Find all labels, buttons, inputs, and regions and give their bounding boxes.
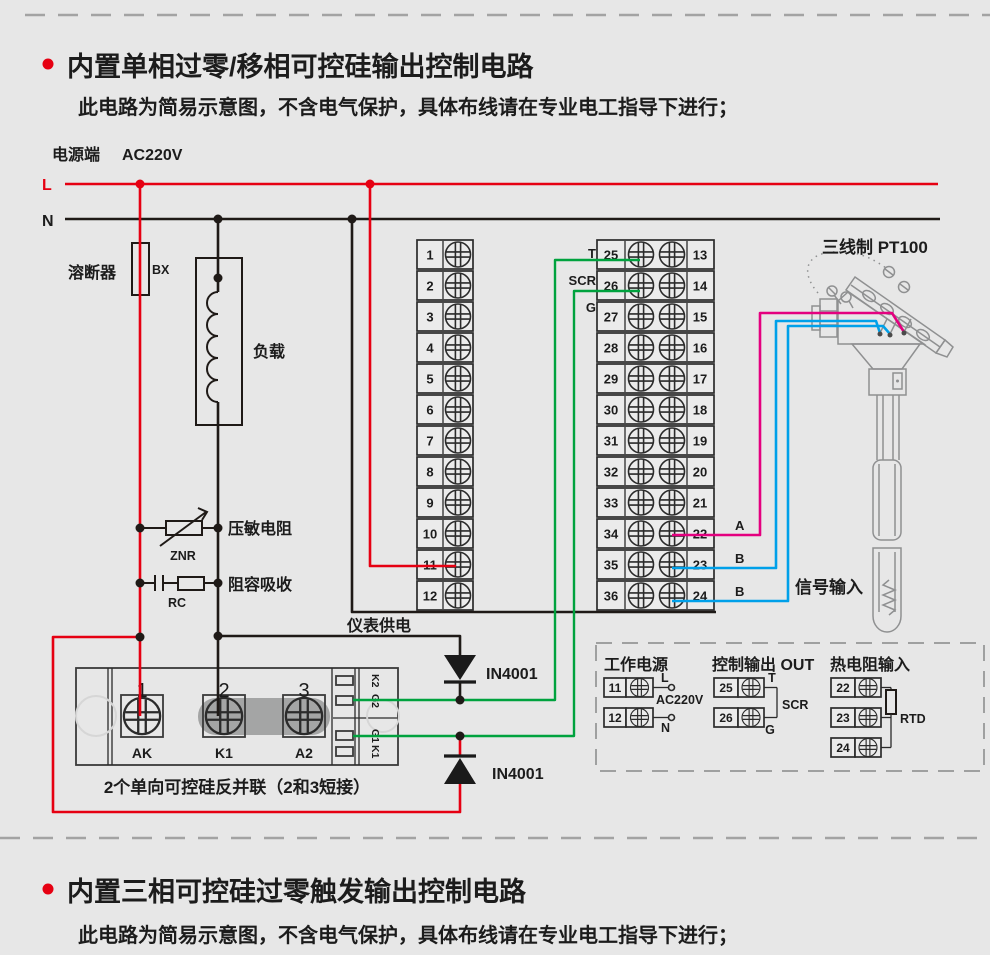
terminal-number: 20	[693, 465, 707, 480]
legend-terminal: 26	[719, 711, 733, 725]
load-label: 负载	[253, 342, 285, 361]
terminal-row: 6	[417, 395, 473, 424]
legend: 工作电源 11 12 L AC220V N 控制输出 OUT 25 26 T S…	[596, 643, 984, 771]
terminal-row: 2816	[597, 333, 714, 362]
terminal-number: 10	[423, 527, 437, 542]
sensor-type-label: 三线制 PT100	[822, 237, 928, 257]
out-t-label: T	[588, 246, 596, 261]
module-terminal-1: 1	[136, 680, 147, 702]
fuse-code-label: BX	[152, 263, 170, 277]
out-scr-label: SCR	[569, 273, 597, 288]
rc-snubber-symbol	[140, 575, 218, 591]
module-caption: 2个单向可控硅反并联（2和3短接）	[104, 777, 370, 797]
terminal-row: 3119	[597, 426, 714, 455]
terminal-number: 31	[604, 434, 618, 449]
legend-terminal: 12	[608, 711, 622, 725]
legend-n-label: N	[661, 721, 670, 735]
terminal-row: 10	[417, 519, 473, 548]
module-label-k1: K1	[215, 745, 233, 761]
terminal-row: 3321	[597, 488, 714, 517]
diode-2	[444, 756, 476, 784]
varistor-code-label: ZNR	[170, 549, 196, 563]
terminal-number: 29	[604, 372, 618, 387]
terminal-number: 14	[693, 279, 708, 294]
terminal-number: 33	[604, 496, 618, 511]
legend-terminal: 23	[836, 711, 850, 725]
terminal-row: 1	[417, 240, 473, 269]
signal-input-label: 信号输入	[795, 577, 863, 597]
terminal-row: 3523	[597, 550, 714, 579]
legend-output-title: 控制输出 OUT	[712, 655, 814, 674]
terminal-row: 8	[417, 457, 473, 486]
terminal-row: 2614	[597, 271, 714, 300]
wire-b2-label: B	[735, 584, 744, 599]
terminal-row: 4	[417, 333, 473, 362]
legend-power-title: 工作电源	[604, 655, 668, 674]
terminal-row: 2	[417, 271, 473, 300]
terminal-row: 2917	[597, 364, 714, 393]
terminal-number: 19	[693, 434, 707, 449]
module-terminal-3: 3	[298, 680, 309, 702]
section2-heading: 内置三相可控硅过零触发输出控制电路 此电路为简易示意图，不含电气保护，具体布线请…	[43, 876, 739, 947]
terminal-number: 8	[426, 465, 433, 480]
module-tab-k1: K1	[369, 745, 381, 759]
line-l-label: L	[42, 177, 52, 194]
fuse-label: 溶断器	[68, 263, 117, 282]
bullet-icon	[43, 59, 54, 70]
terminal-number: 18	[693, 403, 707, 418]
legend-l-label: L	[661, 671, 669, 685]
legend-scr-label: SCR	[782, 698, 808, 712]
section1-subtitle: 此电路为简易示意图，不含电气保护，具体布线请在专业电工指导下进行；	[78, 95, 738, 119]
terminal-number: 16	[693, 341, 707, 356]
wire-b1-label: B	[735, 551, 744, 566]
module-screw-1	[124, 698, 160, 734]
scr-module: 1 2 3 AK K1 A2 K2 G2 G1 K1	[76, 668, 399, 765]
terminal-number: 32	[604, 465, 618, 480]
wiring-diagram: 内置单相过零/移相可控硅输出控制电路 此电路为简易示意图，不含电气保护，具体布线…	[0, 0, 990, 955]
terminal-number: 28	[604, 341, 618, 356]
module-label-a2: A2	[295, 745, 313, 761]
legend-rtd-title: 热电阻输入	[830, 655, 910, 674]
terminal-row: 3422	[597, 519, 714, 548]
module-terminal-2: 2	[218, 680, 229, 702]
wires	[53, 184, 940, 812]
rc-code-label: RC	[168, 596, 186, 610]
module-tab-k2: K2	[369, 674, 381, 688]
pt100-sensor-illustration	[808, 252, 953, 632]
terminal-row: 12	[417, 581, 473, 610]
power-terminal-label: 电源端	[52, 145, 100, 164]
legend-terminal: 11	[609, 681, 622, 695]
line-n-label: N	[42, 213, 54, 230]
terminal-row: 3018	[597, 395, 714, 424]
terminal-row: 3220	[597, 457, 714, 486]
terminal-number: 36	[604, 589, 618, 604]
meter-supply-label: 仪表供电	[346, 616, 411, 635]
terminal-row: 7	[417, 426, 473, 455]
rc-label: 阻容吸收	[228, 575, 292, 594]
out-g-label: G	[586, 300, 596, 315]
terminal-number: 7	[426, 434, 433, 449]
varistor-label: 压敏电阻	[228, 519, 292, 538]
terminal-number: 9	[426, 496, 433, 511]
terminal-number: 13	[693, 248, 707, 263]
terminal-number: 6	[426, 403, 433, 418]
terminal-row: 11	[417, 550, 473, 579]
terminal-number: 5	[426, 372, 433, 387]
section1-title: 内置单相过零/移相可控硅输出控制电路	[67, 51, 535, 82]
terminal-number: 17	[693, 372, 707, 387]
legend-g-label: G	[765, 723, 775, 737]
bullet-icon	[43, 884, 54, 895]
power-voltage-label: AC220V	[122, 147, 183, 164]
terminal-number: 1	[426, 248, 433, 263]
terminal-number: 35	[604, 558, 618, 573]
terminal-number: 3	[426, 310, 433, 325]
terminal-row: 3624	[597, 581, 714, 610]
terminal-row: 2513	[597, 240, 714, 269]
terminal-number: 4	[426, 341, 434, 356]
legend-t-label: T	[768, 671, 776, 685]
legend-terminal: 24	[836, 741, 850, 755]
terminal-number: 34	[604, 527, 619, 542]
section2-subtitle: 此电路为简易示意图，不含电气保护，具体布线请在专业电工指导下进行；	[78, 923, 738, 947]
terminal-number: 30	[604, 403, 618, 418]
legend-terminal: 22	[836, 681, 850, 695]
terminal-strip-left: 123456789101112	[417, 240, 473, 610]
terminal-number: 2	[426, 279, 433, 294]
terminal-number: 15	[693, 310, 707, 325]
section2-title: 内置三相可控硅过零触发输出控制电路	[67, 876, 527, 907]
module-label-ak: AK	[132, 745, 152, 761]
terminal-strip-right: 2513261427152816291730183119322033213422…	[597, 240, 714, 610]
terminal-number: 21	[693, 496, 707, 511]
terminal-row: 9	[417, 488, 473, 517]
terminal-row: 5	[417, 364, 473, 393]
section1-heading: 内置单相过零/移相可控硅输出控制电路 此电路为简易示意图，不含电气保护，具体布线…	[43, 51, 739, 119]
legend-terminal: 25	[719, 681, 733, 695]
varistor-symbol	[140, 508, 218, 546]
terminal-row: 2715	[597, 302, 714, 331]
terminal-number: 12	[423, 589, 437, 604]
wire-a-label: A	[735, 518, 745, 533]
legend-rtd-code: RTD	[900, 712, 926, 726]
terminal-number: 27	[604, 310, 618, 325]
diode-1	[444, 655, 476, 682]
page: 内置单相过零/移相可控硅输出控制电路 此电路为简易示意图，不含电气保护，具体布线…	[0, 0, 990, 955]
diode1-label: IN4001	[486, 666, 538, 683]
legend-voltage-label: AC220V	[656, 693, 704, 707]
terminal-number: 23	[693, 558, 707, 573]
terminal-row: 3	[417, 302, 473, 331]
diode2-label: IN4001	[492, 766, 544, 783]
